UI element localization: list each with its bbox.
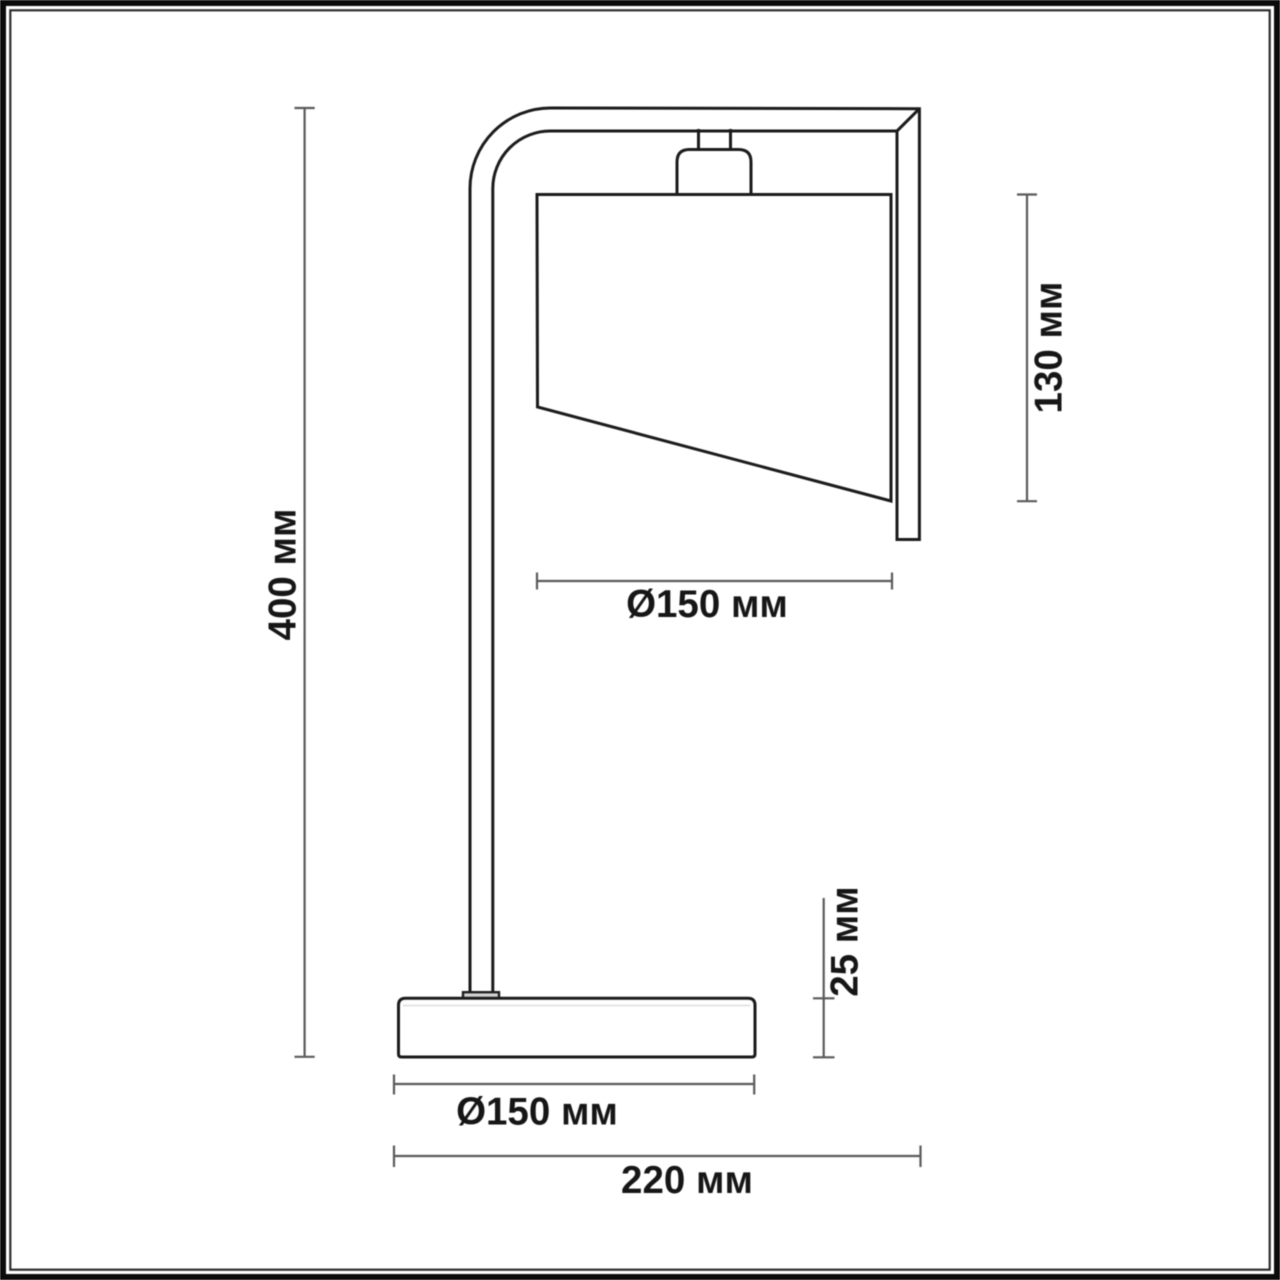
svg-text:25 мм: 25 мм: [824, 886, 867, 996]
svg-text:400 мм: 400 мм: [262, 509, 305, 641]
svg-text:130 мм: 130 мм: [1028, 282, 1071, 414]
svg-text:220 мм: 220 мм: [621, 1159, 753, 1202]
svg-text:Ø150 мм: Ø150 мм: [456, 1091, 618, 1134]
svg-text:Ø150 мм: Ø150 мм: [626, 583, 788, 626]
